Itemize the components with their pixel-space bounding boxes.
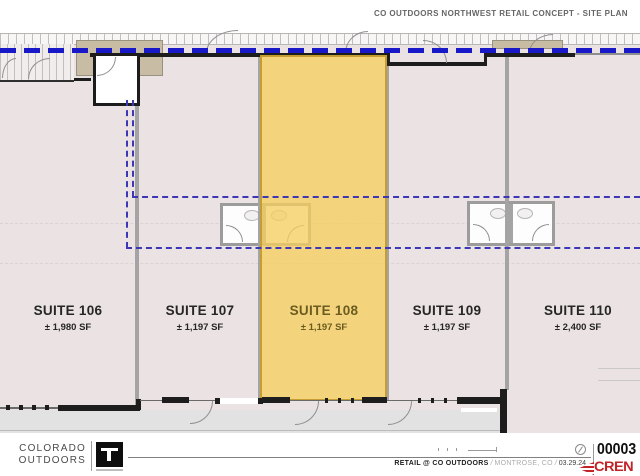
logo-t-stem [107,448,111,461]
suite-107-label: SUITE 107 ± 1,197 SF [140,303,260,333]
mullion-tick [215,398,220,404]
mullion-tick [6,405,10,410]
storefront-wall [58,405,140,411]
brand-line2: OUTDOORS [0,455,86,467]
storefront-glazing [220,398,260,404]
mullion-tick [19,405,23,410]
mullion-tick [45,405,49,410]
door-arc [226,225,243,242]
toilet-fixture [517,208,533,219]
scale-bar [438,446,510,454]
suite-area: ± 2,400 SF [518,322,638,333]
brand-name: COLORADO OUTDOORS [0,443,86,467]
mullion-tick [325,398,328,403]
demising-wall [135,104,139,408]
storefront-glazing [461,408,497,412]
suite-area: ± 1,197 SF [140,322,260,333]
mullion-tick [431,398,434,403]
separator: / [555,460,557,467]
suite-name: SUITE 108 [264,303,384,318]
demising-wall [505,56,509,390]
storefront-wall [362,397,387,403]
pod-divider-wall [509,204,513,243]
storefront-wall [162,397,189,403]
lease-line [126,100,128,248]
suite-area: ± 1,197 SF [387,322,507,333]
reference-line [598,368,640,369]
storefront-wall [457,397,503,404]
rear-wall [575,53,640,55]
door-arc [473,224,490,241]
restroom-pod [467,201,555,246]
suite-110-label: SUITE 110 ± 2,400 SF [518,303,638,333]
page-title: CO OUTDOORS NORTHWEST RETAIL CONCEPT - S… [374,9,628,18]
door-arc [532,224,549,241]
mullion-tick [338,398,341,403]
mullion-tick [32,405,36,410]
brand-line1: COLORADO [0,443,86,455]
cren-logo: CREN [594,459,633,474]
suite-name: SUITE 109 [387,303,507,318]
project-info: RETAIL @ CO OUTDOORS / MONTROSE, CO / 03… [260,460,586,467]
sheet-number: 00003 [597,441,636,459]
suite-area: ± 1,197 SF [264,322,384,333]
suite-name: SUITE 110 [518,303,638,318]
site-plan-sheet: CO OUTDOORS NORTHWEST RETAIL CONCEPT - S… [0,0,640,476]
suite-area: ± 1,980 SF [8,322,128,333]
lease-line [132,196,640,198]
rear-wall [74,78,91,81]
architect-logo-subtext [96,469,123,471]
corner-wall [500,389,507,433]
title-block-rule [128,457,591,458]
architect-logo [96,442,123,467]
project-title: RETAIL @ CO OUTDOORS [394,460,488,467]
suite-106-label: SUITE 106 ± 1,980 SF [8,303,128,333]
suite-name: SUITE 106 [8,303,128,318]
compass-icon [575,444,586,455]
storefront-wall [262,397,290,403]
rear-wall [487,53,575,57]
lease-line [132,100,134,197]
project-date: 03.29.24 [559,460,586,467]
suite-108-label: SUITE 108 ± 1,197 SF [264,303,384,333]
brand-divider [91,441,92,471]
lease-line [126,247,640,249]
mullion-tick [444,398,447,403]
separator: / [491,460,493,467]
sidewalk-edge [0,430,503,431]
suite-108-highlight [260,55,387,401]
project-location: MONTROSE, CO [494,460,552,467]
mullion-tick [351,398,354,403]
suite-name: SUITE 107 [140,303,260,318]
mullion-tick [418,398,421,403]
toilet-fixture [490,208,506,219]
property-line [0,48,640,53]
reference-line [598,380,640,381]
suite-109-label: SUITE 109 ± 1,197 SF [387,303,507,333]
